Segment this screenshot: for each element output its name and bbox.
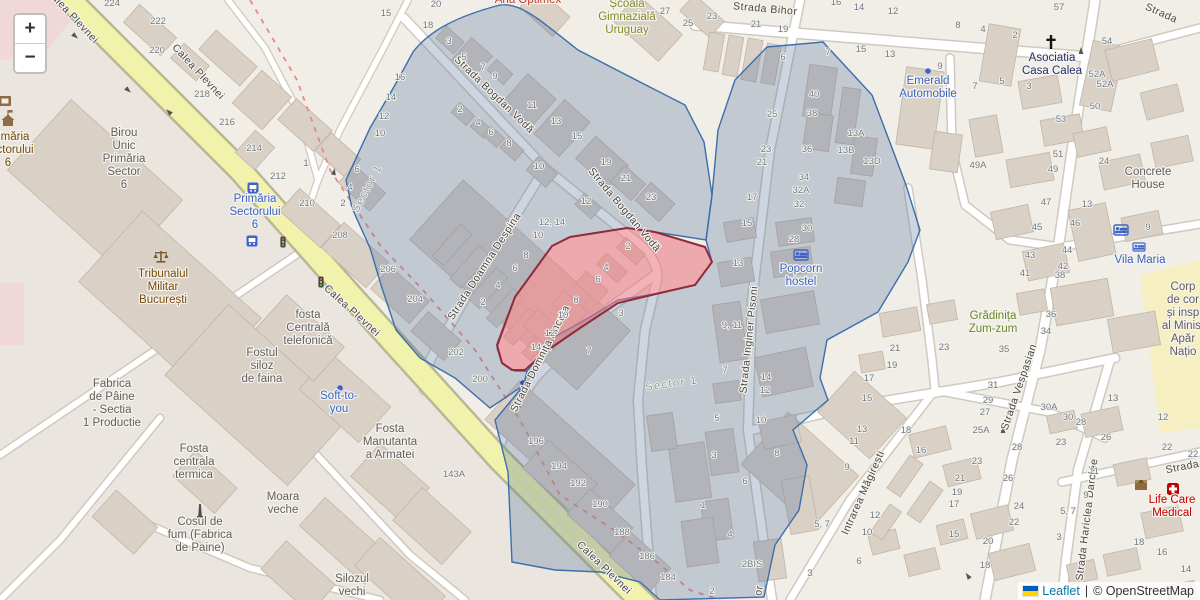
poi-label-gradinita-zum-zum: Grădinița — [970, 310, 1017, 322]
house-number-label: 19 — [952, 487, 963, 498]
poi-label-silozul-vechi: Silozul — [335, 573, 369, 585]
house-number-label: 1 — [700, 500, 705, 511]
poi-dot-emerald — [925, 68, 931, 74]
house-number-label: 50 — [1090, 101, 1101, 112]
poi-label-corpul-de-control: Apăr — [1171, 333, 1195, 345]
house-number-label: 36 — [802, 144, 813, 155]
house-number-label: 3 — [1026, 81, 1031, 92]
house-number-label: 31 — [988, 380, 999, 391]
poi-label-birou-unic-primaria: Primăria — [103, 153, 146, 165]
poi-label-fostul-siloz: de faina — [242, 373, 284, 385]
house-number-label: 10 — [375, 128, 386, 139]
house-number-label: 32A — [793, 185, 811, 196]
house-number-label: 27 — [660, 6, 671, 17]
building — [969, 115, 1003, 157]
house-number-label: 9 — [1083, 490, 1088, 501]
poi-label-fabrica-de-paine: Fabrica — [93, 378, 132, 390]
poi-label-corpul-de-control: al Minist — [1162, 320, 1200, 332]
house-number-label: 15 — [572, 131, 583, 142]
house-number-label: 7 — [480, 62, 485, 73]
house-number-label: 8 — [774, 448, 779, 459]
house-number-label: 12 — [581, 196, 592, 207]
house-number-label: 25A — [973, 425, 991, 436]
house-number-label: 38 — [807, 108, 818, 119]
house-number-label: 8 — [506, 138, 511, 149]
house-number-label: 6 — [780, 52, 785, 63]
house-number-label: 2 — [340, 198, 345, 209]
house-number-label: 19 — [778, 24, 789, 35]
street-name-label: or — [752, 584, 766, 596]
poi-label-corpul-de-control: Corp — [1171, 281, 1196, 293]
poi-label-gradinita-zum-zum: Zum-zum — [969, 323, 1018, 335]
house-number-label: 34 — [799, 172, 810, 183]
poi-label-life-care-medical: Life Care — [1149, 494, 1196, 506]
house-number-label: 216 — [219, 117, 235, 128]
house-number-label: 9 — [1145, 222, 1150, 233]
poi-label-scoala-gimnaziala-uruguay: Școală — [609, 0, 645, 10]
poi-label-fosta-centrala-termica: Fosta — [180, 443, 209, 455]
house-number-label: 25 — [767, 109, 778, 120]
house-number-label: 214 — [246, 143, 262, 154]
house-number-label: 218 — [194, 89, 210, 100]
house-number-label: 18 — [980, 560, 991, 571]
house-number-label: 20 — [431, 0, 442, 10]
poi-label-ana-optimex: Ana Optimex — [495, 0, 562, 6]
poi-label-primaria-sectorului-6-hall: Primăria — [0, 131, 30, 143]
house-number-label: 3 — [807, 568, 812, 579]
house-number-label: 9 — [492, 71, 497, 82]
poi-label-fosta-manutanta: Fosta — [376, 423, 405, 435]
building — [929, 131, 962, 173]
house-number-label: 17 — [949, 499, 960, 510]
house-number-label: 2 — [709, 586, 714, 597]
house-number-label: 28 — [789, 234, 800, 245]
house-number-label: 3 — [446, 36, 451, 47]
house-number-label: 41 — [1020, 268, 1031, 279]
house-number-label: 5, 7 — [814, 519, 830, 530]
house-number-label: 196 — [528, 436, 544, 447]
poi-label-fabrica-de-paine: de Pâine — [89, 391, 134, 403]
house-number-label: 21 — [751, 19, 762, 30]
house-number-label: 12 — [870, 510, 881, 521]
house-number-label: 224 — [104, 0, 120, 9]
poi-label-fosta-manutanta: a Armatei — [366, 449, 415, 461]
house-number-label: 12 — [1158, 412, 1169, 423]
poi-label-cosul-de-fum: de Paine) — [175, 542, 224, 554]
house-number-label: 11 — [849, 436, 859, 447]
poi-label-birou-unic-primaria: 6 — [121, 179, 127, 191]
house-number-label: 18 — [423, 20, 434, 31]
house-number-label: 12 — [545, 328, 556, 339]
zoom-in-button[interactable]: + — [15, 15, 45, 43]
house-number-label: 21 — [757, 157, 768, 168]
poi-label-emerald-automobile: Automobile — [899, 88, 957, 100]
openstreetmap-link[interactable]: © OpenStreetMap — [1093, 584, 1194, 598]
house-number-label: 9, 11 — [722, 320, 742, 331]
house-number-label: 192 — [570, 478, 586, 489]
house-number-label: 14 — [531, 342, 542, 353]
house-number-label: 49A — [970, 160, 988, 171]
house-number-label: 22 — [1009, 517, 1020, 528]
house-number-label: 4 — [603, 262, 608, 273]
house-number-label: 19 — [887, 360, 898, 371]
poi-label-scoala-gimnaziala-uruguay: Gimnazială — [598, 11, 656, 23]
house-number-label: 6 — [856, 556, 861, 567]
poi-label-primaria-sectorului-6-hall: 6 — [5, 157, 11, 169]
poi-label-popcorn-hostel: hostel — [786, 276, 817, 288]
poi-label-fabrica-de-paine: 1 Productie — [83, 417, 141, 429]
ukraine-flag-icon — [1023, 586, 1038, 596]
house-number-label: 10 — [756, 415, 767, 426]
house-number-label: 11 — [1089, 466, 1099, 477]
poi-label-concrete-house: House — [1131, 179, 1164, 191]
house-number-label: 4 — [347, 182, 352, 193]
poi-label-fosta-centrala-telefonica: telefonică — [283, 335, 333, 347]
house-number-label: 14 — [854, 2, 865, 13]
house-number-label: 13 — [885, 49, 896, 60]
house-number-label: 2 — [480, 297, 485, 308]
house-number-label: 12 — [379, 111, 390, 122]
building — [859, 351, 886, 373]
house-number-label: 14 — [761, 372, 772, 383]
house-number-label: 27 — [980, 407, 991, 418]
poi-label-birou-unic-primaria: Birou — [111, 127, 138, 139]
poi-label-corpul-de-control: Națio — [1170, 346, 1197, 358]
house-number-label: 16 — [395, 72, 406, 83]
house-number-label: 57 — [1054, 2, 1065, 13]
poi-label-fosta-centrala-termica: centrala — [174, 456, 216, 468]
house-number-label: 194 — [551, 461, 567, 472]
house-number-label: 23 — [646, 192, 657, 203]
house-number-label: 16 — [1157, 547, 1168, 558]
retail-landuse-left — [0, 283, 24, 345]
house-number-label: 6 — [742, 476, 747, 487]
house-number-label: 23 — [972, 456, 983, 467]
house-number-label: 13 — [1108, 393, 1119, 404]
poi-label-fostul-siloz: siloz — [250, 360, 273, 372]
house-number-label: 17 — [747, 192, 758, 203]
house-number-label: 46 — [1070, 218, 1081, 229]
house-number-label: 30 — [802, 223, 813, 234]
house-number-label: 184 — [660, 572, 676, 583]
house-number-label: 17 — [864, 373, 875, 384]
house-number-label: 47 — [1041, 197, 1052, 208]
leaflet-link[interactable]: Leaflet — [1042, 584, 1080, 598]
house-number-label: 206 — [380, 264, 396, 275]
house-number-label: 23 — [707, 11, 718, 22]
bus-stop-icon — [247, 236, 258, 247]
poi-label-silozul-vechi: vechi — [339, 586, 366, 598]
house-number-label: 44 — [1062, 245, 1073, 256]
house-number-label: 8 — [573, 295, 578, 306]
house-number-label: 13 — [857, 424, 868, 435]
poi-label-tribunalul-militar: Tribunalul — [138, 268, 188, 280]
house-number-label: 38 — [1055, 270, 1066, 281]
poi-label-corpul-de-control: de cor — [1167, 294, 1199, 306]
house-number-label: 2BIS — [742, 559, 763, 570]
poi-label-primaria-sectorului-6-hall: Sectorului — [0, 144, 34, 156]
poi-label-fabrica-de-paine: - Sectia — [93, 404, 133, 416]
house-number-label: 3 — [1056, 532, 1061, 543]
poi-label-vila-maria: Vila Maria — [1115, 254, 1167, 266]
house-number-label: 30A — [1041, 402, 1059, 413]
attribution-bar: Leaflet | © OpenStreetMap — [1018, 582, 1200, 600]
house-number-label: 3 — [618, 308, 623, 319]
poi-label-fosta-manutanta: Manutanta — [363, 436, 418, 448]
landmark-icon — [0, 96, 11, 106]
building — [926, 300, 957, 325]
house-number-label: 54 — [1102, 36, 1113, 47]
poi-label-soft-to-you: you — [330, 403, 349, 415]
house-number-label: 28 — [1076, 417, 1087, 428]
poi-label-moara-veche: veche — [268, 504, 299, 516]
house-number-label: 188 — [614, 527, 630, 538]
house-number-label: 2 — [1012, 30, 1017, 41]
poi-label-birou-unic-primaria: Unic — [112, 140, 135, 152]
house-number-label: 208 — [332, 230, 348, 241]
house-number-label: 21 — [621, 173, 632, 184]
house-number-label: 26 — [1101, 432, 1112, 443]
house-number-label: 212 — [270, 171, 286, 182]
poi-label-emerald-automobile: Emerald — [907, 75, 950, 87]
house-number-label: 7 — [586, 346, 591, 357]
house-number-label: 222 — [150, 16, 166, 27]
house-number-label: 13 — [551, 116, 562, 127]
house-number-label: 26 — [1003, 473, 1014, 484]
house-number-label: 52A — [1097, 79, 1115, 90]
house-number-label: 15 — [381, 8, 392, 19]
house-number-label: 9 — [937, 61, 942, 72]
house-number-label: 18 — [1134, 537, 1145, 548]
poi-label-corpul-de-control: și insp — [1167, 307, 1200, 319]
house-number-label: 13A — [848, 128, 866, 139]
house-number-label: 10 — [534, 161, 545, 172]
house-number-label: 5 — [999, 76, 1004, 87]
house-number-label: 5, 7 — [1060, 506, 1076, 517]
zoom-out-button[interactable]: − — [15, 44, 45, 72]
map-viewport: Calea PlevneiCalea PlevneiCalea PlevneiC… — [0, 0, 1200, 600]
attribution-separator: | — [1085, 584, 1088, 598]
house-number-label: 36 — [1046, 309, 1057, 320]
poi-label-primaria-sectorului-6-stop: Primăria — [234, 193, 277, 205]
house-number-label: 200 — [472, 374, 488, 385]
house-number-label: 12, 14 — [539, 217, 565, 228]
house-number-label: 8 — [955, 20, 960, 31]
poi-label-moara-veche: Moara — [267, 491, 300, 503]
house-number-label: 6 — [512, 263, 517, 274]
house-number-label: 13 — [733, 258, 744, 269]
house-number-label: 15 — [862, 393, 873, 404]
poi-label-cosul-de-fum: fum (Fabrica — [168, 529, 233, 541]
poi-label-life-care-medical: Medical — [1152, 507, 1192, 519]
house-number-label: 5 — [461, 52, 466, 63]
house-number-label: 143A — [443, 469, 466, 480]
poi-label-primaria-sectorului-6-stop: 6 — [252, 219, 258, 231]
house-number-label: 18 — [901, 425, 912, 436]
poi-label-cosul-de-fum: Cosul de — [177, 516, 222, 528]
poi-label-scoala-gimnaziala-uruguay: Uruguay — [605, 24, 649, 36]
poi-label-concrete-house: Concrete — [1125, 166, 1172, 178]
house-number-label: 12 — [888, 6, 899, 17]
house-number-label: 7 — [972, 81, 977, 92]
house-number-label: 21 — [955, 473, 966, 484]
house-number-label: 3 — [711, 450, 716, 461]
house-number-label: 15 — [949, 529, 960, 540]
house-number-label: 13B — [838, 145, 855, 156]
house-number-label: 11 — [527, 100, 537, 111]
convenience-store-icon — [1135, 480, 1147, 490]
building — [1016, 289, 1047, 316]
house-number-label: 30 — [1063, 412, 1074, 423]
house-number-label: 15 — [742, 218, 753, 229]
house-number-label: 23 — [761, 144, 772, 155]
poi-label-tribunalul-militar: București — [139, 294, 187, 306]
bus-stop-icon — [248, 183, 259, 194]
house-number-label: 190 — [592, 499, 608, 510]
house-number-label: 6 — [354, 164, 359, 175]
house-number-label: 210 — [299, 198, 315, 209]
house-number-label: 6 — [595, 274, 600, 285]
house-number-label: 4 — [727, 529, 732, 540]
poi-label-asociatia-casa-calea: Casa Calea — [1022, 65, 1083, 77]
house-number-label: 23 — [939, 342, 950, 353]
house-number-label: 4 — [980, 24, 985, 35]
house-number-label: 35 — [999, 344, 1010, 355]
poi-label-soft-to-you: Soft-to- — [320, 390, 358, 402]
house-number-label: 28 — [1012, 442, 1023, 453]
house-number-label: 10 — [862, 527, 873, 538]
house-number-label: 22 — [1162, 442, 1173, 453]
house-number-label: 15 — [856, 44, 867, 55]
house-number-label: 6 — [488, 127, 493, 138]
poi-label-asociatia-casa-calea: Asociatia — [1029, 52, 1076, 64]
house-number-label: 5 — [714, 413, 719, 424]
poi-label-tribunalul-militar: Militar — [148, 281, 179, 293]
house-number-label: 7 — [825, 47, 830, 58]
house-number-label: 8 — [523, 250, 528, 261]
house-number-label: 22 — [1188, 449, 1199, 460]
house-number-label: 4 — [475, 117, 480, 128]
house-number-label: 53 — [1056, 114, 1067, 125]
poi-label-primaria-sectorului-6-stop: Sectorului — [229, 206, 280, 218]
traffic-light-icon — [280, 237, 285, 248]
house-number-label: 51 — [1053, 149, 1064, 160]
house-number-label: 24 — [1099, 156, 1110, 167]
house-number-label: 16 — [831, 0, 842, 8]
poi-label-birou-unic-primaria: Sector — [107, 166, 140, 178]
house-number-label: 9 — [844, 462, 849, 473]
house-number-label: 14 — [1181, 564, 1192, 575]
house-number-label: 186 — [639, 551, 655, 562]
zoom-control: + − — [13, 13, 47, 74]
traffic-light-icon — [318, 277, 323, 288]
house-number-label: 20 — [983, 536, 994, 547]
house-number-label: 14 — [386, 92, 397, 103]
house-number-label: 10 — [533, 230, 544, 241]
house-number-label: 2 — [457, 104, 462, 115]
house-number-label: 24 — [1014, 501, 1025, 512]
poi-label-fosta-centrala-termica: termica — [175, 469, 213, 481]
house-number-label: 43 — [1025, 250, 1036, 261]
house-number-label: 19 — [601, 157, 612, 168]
map-canvas[interactable]: Calea PlevneiCalea PlevneiCalea PlevneiC… — [0, 0, 1200, 600]
house-number-label: 2 — [625, 241, 630, 252]
house-number-label: 16 — [916, 445, 927, 456]
house-number-label: 204 — [407, 294, 423, 305]
house-number-label: 10 — [558, 310, 569, 321]
house-number-label: 23 — [1056, 437, 1067, 448]
house-number-label: 25 — [683, 18, 694, 29]
house-number-label: 34 — [1041, 326, 1052, 337]
house-number-label: 40 — [809, 89, 820, 100]
house-number-label: 21 — [890, 343, 901, 354]
house-number-label: 202 — [448, 347, 464, 358]
house-number-label: 220 — [149, 45, 165, 56]
house-number-label: 7 — [722, 365, 727, 376]
house-number-label: 13D — [863, 156, 881, 167]
house-number-label: 12 — [760, 385, 771, 396]
poi-label-fostul-siloz: Fostul — [246, 347, 277, 359]
house-number-label: 45 — [1032, 222, 1043, 233]
house-number-label: 49 — [1048, 164, 1059, 175]
house-number-label: 29 — [983, 395, 994, 406]
poi-label-fosta-centrala-telefonica: Centrală — [286, 322, 330, 334]
house-number-label: 1 — [303, 158, 308, 169]
poi-label-fosta-centrala-telefonica: fosta — [296, 309, 322, 321]
poi-label-popcorn-hostel: Popcorn — [780, 263, 823, 275]
house-number-label: 13 — [1082, 199, 1093, 210]
house-number-label: 32 — [794, 199, 805, 210]
house-number-label: 4 — [495, 280, 500, 291]
